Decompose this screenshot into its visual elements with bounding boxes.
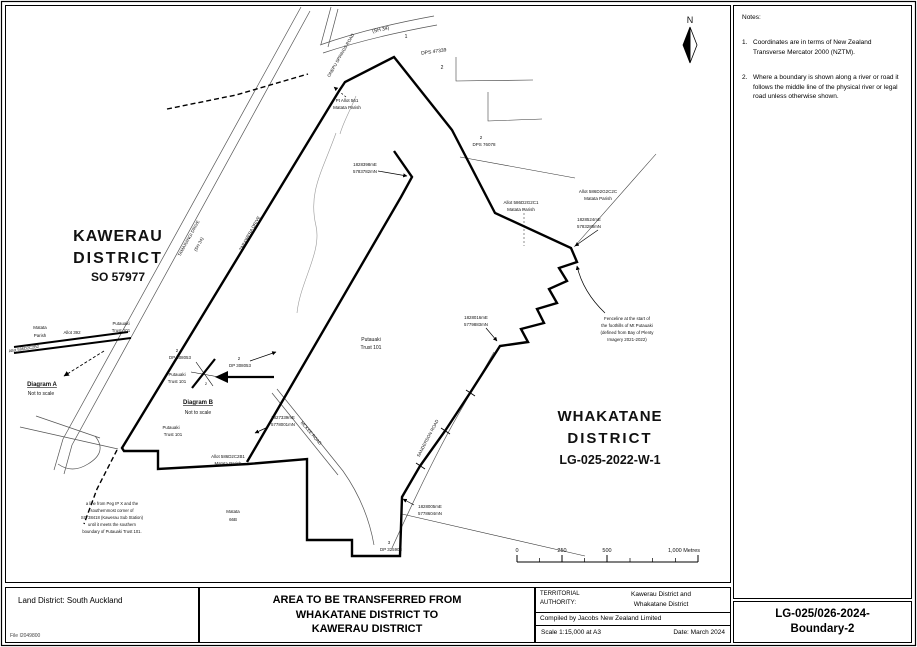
label-putauaki-center: Putauaki — [361, 337, 380, 343]
whakatane-district-line1: WHAKATANE — [557, 408, 662, 425]
label-coord-s-e: 1828005mE — [418, 504, 442, 509]
label-diagram-b: Diagram B — [183, 400, 214, 406]
ta-row: TERRITORIAL AUTHORITY: Kawerau District … — [536, 588, 730, 612]
whakatane-district-line2: DISTRICT — [567, 430, 652, 447]
survey-plan-page: N 0 250 500 1,000 Metres KAWERAU — [0, 0, 917, 647]
sheet-reference-box: LG-025/026-2024- Boundary-2 — [733, 601, 912, 643]
ta-label-line2: AUTHORITY: — [540, 599, 596, 608]
label-putauaki-w2: Trust 101 — [112, 328, 131, 333]
note-2-text: Where a boundary is shown along a river … — [753, 73, 903, 101]
label-coord-mid-e: 1828016mE — [464, 315, 488, 320]
label-putauaki-b2: Trust 101 — [168, 379, 187, 384]
label-diagram-a: Diagram A — [27, 382, 57, 388]
note-2: 2. Where a boundary is shown along a riv… — [742, 73, 903, 101]
sheet-ref-line1: LG-025/026-2024- — [775, 607, 870, 622]
plan-title-line2: WHAKATANE DISTRICT TO — [296, 608, 438, 623]
whakatane-district-lg: LG-025-2022-W-1 — [559, 453, 660, 467]
ta-value-line1: Kawerau District and — [596, 590, 726, 600]
sheet-ref-line2: Boundary-2 — [791, 622, 855, 637]
map-frame — [6, 6, 731, 583]
label-putauaki-center-2: Trust 101 — [361, 345, 382, 351]
label-dp308053-b: DP 308053 — [169, 355, 191, 360]
label-peg-note-3: SO 38418 (Kawerau Sub Station) — [81, 515, 144, 520]
label-dp325908: DP 325908 — [380, 547, 402, 552]
label-dps76078: DPS 76078 — [472, 142, 496, 147]
plan-title-line3: KAWERAU DISTRICT — [312, 622, 423, 637]
scale-date-row: Scale 1:15,000 at A3 Date: March 2024 — [536, 625, 730, 642]
label-lot1: 1 — [405, 34, 408, 40]
label-diagram-b-sub: Not to scale — [185, 410, 212, 416]
north-label: N — [687, 15, 694, 25]
label-coord-e-n: 5783288mN — [577, 224, 601, 229]
label-putauaki-s: Putauaki — [162, 425, 179, 430]
note-1-number: 1. — [742, 38, 753, 57]
label-coord-mid-n: 5779883mN — [464, 322, 488, 327]
scale-label-500: 500 — [602, 548, 611, 554]
label-allot392: Allot 392 — [63, 330, 81, 335]
label-putauaki-b: Putauaki — [168, 372, 185, 377]
label-coord-w-n: 5778001mN — [271, 422, 295, 427]
label-coord-ne-n: 5783782mN — [353, 169, 377, 174]
label-fenceline-2: the foothills of Mt Putauaki — [601, 323, 653, 328]
file-reference: File I2049800 — [10, 633, 40, 639]
label-dp308053-m: DP 308053 — [229, 363, 251, 368]
label-allot-2g2c1-parish: Matata Parish — [507, 207, 535, 212]
date-text: Date: March 2024 — [673, 629, 725, 639]
ta-value: Kawerau District and Whakatane District — [596, 590, 726, 610]
label-matata-parish-w: Matata — [33, 325, 47, 330]
note-1-text: Coordinates are in terms of New Zealand … — [753, 38, 903, 57]
notes-panel: Notes: 1. Coordinates are in terms of Ne… — [733, 5, 912, 599]
label-allot-2g2c2c-parish: Matata Parish — [584, 196, 612, 201]
kawerau-district-line2: DISTRICT — [73, 250, 163, 267]
note-2-number: 2. — [742, 73, 753, 101]
plan-title-box: AREA TO BE TRANSFERRED FROM WHAKATANE DI… — [199, 587, 535, 643]
label-pt-allot561: Pt Allot 561 — [336, 98, 359, 103]
label-fenceline-3: (defined from Bay of Plenty — [601, 330, 655, 335]
label-peg-note-1: a line from Peg IP X and the — [86, 501, 139, 506]
territorial-authority-box: TERRITORIAL AUTHORITY: Kawerau District … — [535, 587, 731, 643]
label-matata66b: Matata — [226, 509, 240, 514]
label-coord-s-n: 5778604mN — [418, 511, 442, 516]
scale-label-0: 0 — [515, 548, 518, 554]
ta-label-line1: TERRITORIAL — [540, 590, 596, 599]
label-pt-allot561-parish: Matata Parish — [333, 105, 361, 110]
note-1: 1. Coordinates are in terms of New Zeala… — [742, 38, 903, 57]
label-putauaki-w: Putauaki — [112, 321, 129, 326]
label-lot2: 2 — [441, 65, 444, 71]
kawerau-district-so: SO 57977 — [91, 270, 145, 284]
label-peg-note-2: southernmost corner of — [90, 508, 134, 513]
plan-title-line1: AREA TO BE TRANSFERRED FROM — [273, 593, 462, 608]
label-allot-2g2c1: Allot 586D2G2C1 — [503, 200, 539, 205]
label-peg-note-5: boundary of Putauaki Trust 101. — [82, 529, 141, 534]
land-district-text: Land District: South Auckland — [18, 596, 123, 605]
label-matata66b-2: 66B — [229, 517, 237, 522]
label-diagram-a-sub: Not to scale — [28, 391, 55, 397]
label-coord-e-e: 1828524mE — [577, 217, 601, 222]
label-allot-2g2c2c: Allot 586D2G2C2C — [579, 189, 618, 194]
label-allot-2c2b1: Allot 586D2C2B1 — [211, 454, 245, 459]
label-coord-ne-e: 1828398mE — [353, 162, 377, 167]
land-district-box: Land District: South Auckland File I2049… — [5, 587, 199, 643]
label-fenceline-1: Fenceline at the start of — [604, 316, 651, 321]
ta-label: TERRITORIAL AUTHORITY: — [540, 590, 596, 610]
ta-value-line2: Whakatane District — [596, 600, 726, 610]
scale-text: Scale 1:15,000 at A3 — [541, 629, 601, 639]
label-fenceline-4: Imagery 2021-2022) — [607, 337, 647, 342]
label-allot-2c2b1-parish: Matata Parish — [214, 461, 242, 466]
scale-label-1000: 1,000 Metres — [668, 548, 700, 554]
notes-title: Notes: — [742, 13, 903, 22]
scale-label-250: 250 — [557, 548, 566, 554]
compiled-by-row: Compiled by Jacobs New Zealand Limited — [536, 612, 730, 625]
label-matata-parish-w2: Parish — [34, 333, 47, 338]
label-peg-note-4: until it meets the southern — [88, 522, 137, 527]
label-coord-w-e: 1827339mE — [271, 415, 295, 420]
label-putauaki-s2: Trust 101 — [164, 432, 183, 437]
kawerau-district-line1: KAWERAU — [73, 228, 163, 245]
